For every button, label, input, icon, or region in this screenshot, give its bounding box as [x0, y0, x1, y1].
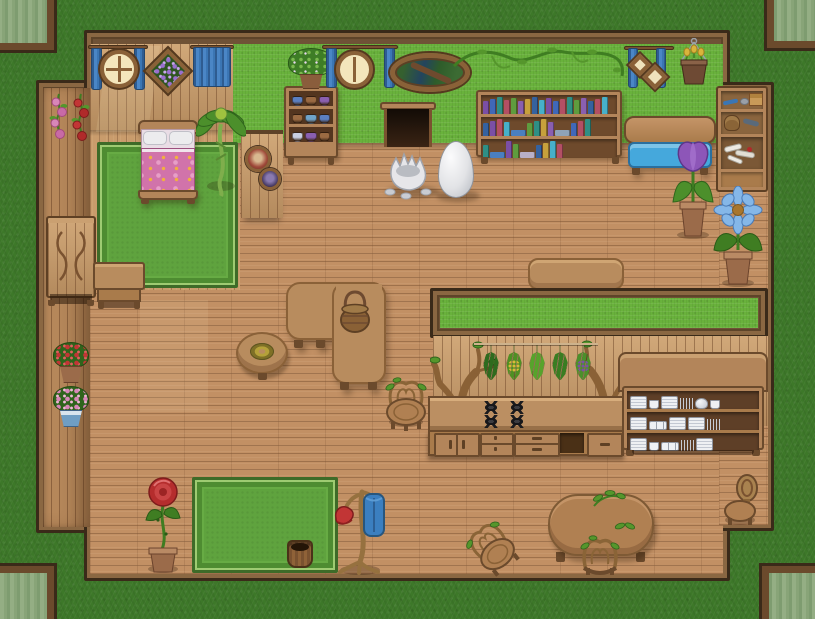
- hutch-body: [622, 386, 764, 450]
- book-spine: [578, 121, 584, 136]
- stove-burner[interactable]: [480, 401, 502, 414]
- herb-leaves: [483, 352, 499, 380]
- wide-drawer[interactable]: [514, 443, 560, 457]
- wooden-bucket[interactable]: [287, 536, 315, 572]
- book-spine: [543, 143, 549, 158]
- dresser-under-shadow: [50, 294, 92, 304]
- book-spine: [504, 122, 510, 136]
- bedroom-round-window: [100, 50, 138, 88]
- book-spine: [555, 130, 570, 136]
- herb-flowers: [508, 360, 520, 372]
- carved-dresser[interactable]: [46, 216, 96, 306]
- book-spine: [536, 145, 542, 158]
- book-spine: [602, 97, 608, 114]
- stove-burner[interactable]: [506, 415, 528, 428]
- herb-rope: [474, 343, 598, 345]
- window-glass: [769, 573, 815, 619]
- basket[interactable]: [338, 288, 372, 336]
- dark-bone: [743, 118, 760, 127]
- flower-pot: [59, 366, 83, 383]
- stove-burner[interactable]: [480, 415, 502, 428]
- branch-chair[interactable]: [384, 374, 428, 432]
- book-spine: [497, 119, 503, 136]
- book-spine: [497, 97, 503, 114]
- plant-pot: [298, 74, 324, 89]
- pottery-bowl: [319, 132, 330, 142]
- cracked-eggshell[interactable]: [384, 144, 440, 200]
- drawer[interactable]: [480, 443, 514, 457]
- hanging-tulip-basket[interactable]: [678, 38, 710, 88]
- book-spine: [574, 100, 580, 114]
- mirror-tree-trunk: [410, 61, 453, 84]
- kitchen-wall-top: [430, 288, 768, 338]
- book-spine: [548, 122, 554, 136]
- closet-floor: [43, 88, 90, 527]
- pottery-shelf[interactable]: [284, 86, 338, 158]
- herb-leaves: [529, 352, 545, 380]
- pottery-bowl: [305, 132, 316, 142]
- dish-cup: [649, 400, 659, 409]
- dish-hutch[interactable]: [618, 352, 768, 456]
- cabinet-door[interactable]: [434, 433, 458, 457]
- coat-stand[interactable]: [332, 484, 388, 576]
- wooden-chair[interactable]: [722, 474, 762, 528]
- bookshelf-row: [481, 95, 617, 117]
- book-spine: [588, 101, 594, 114]
- dish-cup: [710, 400, 720, 409]
- bed-footboard: [138, 190, 198, 200]
- pottery-shelf-row: [289, 91, 333, 109]
- bed-pillow-left: [143, 131, 167, 145]
- pottery-bowl: [319, 96, 330, 106]
- hutch-shelf-row: [627, 391, 759, 412]
- wall-side-table[interactable]: [528, 258, 624, 290]
- table-leaf-sprig: [590, 488, 626, 510]
- pottery-bowl: [305, 114, 316, 124]
- shelf-compartment-4: [721, 172, 763, 187]
- bucket-opening: [291, 543, 309, 551]
- red-flower-bush: [53, 342, 89, 368]
- book-spine: [483, 101, 489, 114]
- shelf-compartment-2: [721, 112, 763, 134]
- book-spine: [511, 130, 526, 136]
- window-glass: [774, 0, 815, 41]
- book-spine: [490, 152, 505, 158]
- l-shaped-table[interactable]: [286, 282, 386, 384]
- exterior-window-bottom-right: [762, 566, 815, 619]
- stove-burner[interactable]: [506, 401, 528, 414]
- herb-leaves: [552, 352, 568, 380]
- potted-rose[interactable]: [144, 476, 182, 574]
- dish-plates: [661, 396, 678, 409]
- wreath: [250, 343, 274, 360]
- hutch-shelf-row: [627, 433, 759, 451]
- book-spine: [513, 144, 519, 158]
- nightstand-front: [97, 288, 141, 302]
- book-spine: [490, 99, 496, 114]
- book-spine: [550, 141, 556, 158]
- nightstand-under-shadow: [101, 302, 137, 308]
- exterior-window-bottom-left: [0, 566, 54, 619]
- nightstand-top: [93, 262, 145, 290]
- bed-pillow-right: [169, 131, 193, 145]
- dish-cutlery: [707, 419, 720, 430]
- book-spine: [506, 141, 512, 158]
- pet-door-opening: [384, 109, 432, 147]
- book-spine: [520, 152, 535, 158]
- hutch-under-shadow: [632, 450, 754, 455]
- bookshelf-row: [481, 139, 617, 158]
- pottery-bowl: [292, 96, 303, 106]
- pottery-shelf-row: [289, 109, 333, 127]
- window-glass: [0, 573, 47, 619]
- kitchen-wall-grass-top: [440, 298, 758, 328]
- pottery-bowl: [292, 114, 303, 124]
- bed[interactable]: [138, 120, 198, 204]
- pink-flower-bush: [53, 386, 89, 412]
- sun-patch: [140, 300, 208, 412]
- book-spine: [534, 121, 540, 136]
- storage-shelf[interactable]: [716, 86, 768, 192]
- bookshelf-row: [481, 117, 617, 139]
- leather-bag: [724, 115, 740, 131]
- book-spine: [553, 101, 559, 114]
- bookshelf[interactable]: [476, 90, 622, 157]
- book-spine: [527, 123, 533, 136]
- cabinet-door[interactable]: [456, 433, 480, 457]
- dish-pot: [695, 398, 708, 409]
- dresser-carvings: [52, 228, 90, 288]
- hall-round-window: [336, 51, 373, 88]
- herb-flowers: [577, 360, 589, 372]
- book-spine: [567, 97, 573, 114]
- book-spine: [490, 121, 496, 136]
- portrait-frame-bottom: [259, 168, 281, 190]
- book-spine: [585, 119, 591, 136]
- round-side-table[interactable]: [236, 332, 288, 380]
- window-glass: [0, 0, 47, 43]
- book-spine: [557, 144, 563, 158]
- book-spine: [571, 123, 577, 136]
- book-spine: [546, 98, 552, 114]
- hall-rug: [192, 477, 338, 573]
- herb-bundle[interactable]: [505, 344, 523, 382]
- nightstand[interactable]: [93, 262, 145, 310]
- pottery-bowl: [292, 132, 303, 142]
- shelf-compartment-1: [721, 91, 763, 109]
- dish-plates: [669, 417, 686, 430]
- hanging-herb-line: [474, 336, 598, 386]
- pink-rose-garland: [48, 92, 70, 146]
- dish-plates: [688, 417, 705, 430]
- stone: [740, 98, 749, 105]
- red-rose-garland: [70, 92, 92, 148]
- book-spine: [539, 100, 545, 114]
- palm-plant[interactable]: [196, 96, 246, 200]
- herb-bundle[interactable]: [482, 344, 500, 382]
- pottery-bowl: [319, 114, 330, 124]
- pet-door[interactable]: [380, 102, 436, 147]
- game-scene: [0, 0, 815, 619]
- dining-branch-chair[interactable]: [578, 530, 622, 576]
- exterior-window-top-left: [0, 0, 54, 50]
- dish-plates: [630, 396, 647, 409]
- hutch-shelf-row: [627, 412, 759, 433]
- potted-purple-tulip[interactable]: [671, 140, 715, 240]
- herb-bundle[interactable]: [528, 344, 546, 382]
- potted-blue-flower[interactable]: [712, 186, 764, 288]
- potted-red-flowers[interactable]: [53, 342, 89, 386]
- wall-vine: [452, 42, 627, 84]
- book-spine: [541, 119, 547, 136]
- dish-cups: [649, 421, 667, 430]
- book-spine: [518, 101, 524, 114]
- book-spine: [483, 123, 489, 136]
- book-spine: [595, 99, 601, 114]
- herb-bundle[interactable]: [574, 344, 592, 382]
- pottery-shelf-row: [289, 127, 333, 145]
- bed-blanket: [141, 148, 195, 192]
- book-spine: [504, 100, 510, 114]
- bedroom-wide-curtain: [193, 47, 231, 87]
- pottery-bowl: [305, 96, 316, 106]
- wooden-box: [749, 93, 763, 106]
- book-spine: [511, 98, 517, 114]
- cabinet-counter[interactable]: [428, 396, 624, 458]
- blue-tool: [723, 98, 739, 105]
- book-spine: [532, 97, 538, 114]
- book-spine: [581, 98, 587, 114]
- shelf-compartment-3: [721, 137, 763, 169]
- book-spine: [525, 99, 531, 114]
- book-spine: [560, 99, 566, 114]
- exterior-window-top-right: [767, 0, 815, 48]
- dish-cutlery: [680, 398, 693, 409]
- herb-bundle[interactable]: [551, 344, 569, 382]
- dish-plates: [630, 417, 647, 430]
- ceramic-pot: [59, 410, 83, 427]
- counter-open-gap: [560, 433, 584, 453]
- red-spot: [747, 147, 752, 152]
- potted-pink-flowers[interactable]: [53, 386, 89, 430]
